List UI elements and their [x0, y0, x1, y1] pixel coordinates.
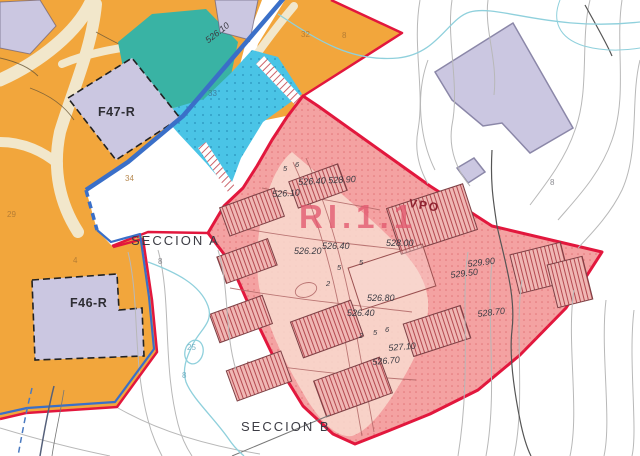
sector-label: RI.1.1: [299, 200, 417, 233]
road-width-label: 5: [373, 329, 377, 337]
elevation-label: 526.40: [322, 242, 350, 251]
parcel-number: 29: [7, 211, 16, 219]
road-width-label: 6: [295, 161, 299, 169]
elevation-label: 526.10: [272, 189, 300, 199]
seccion-a-label: SECCION A: [131, 234, 220, 247]
elevation-label: 526.80: [367, 294, 395, 303]
seccion-b-label: SECCION B: [241, 420, 331, 433]
parcel-label-f47: F47-R: [98, 106, 135, 119]
elevation-label: 526.20: [294, 247, 322, 256]
parcel-number: 8: [550, 179, 554, 187]
elevation-label: 526.40: [347, 309, 375, 318]
road-width-label: 2: [359, 332, 363, 340]
parcel-number: 8: [182, 372, 186, 380]
road-width-label: 6: [385, 326, 389, 334]
elevation-label: 528.00: [386, 239, 414, 248]
parcel-number: 4: [73, 257, 77, 265]
parcel-number: 33: [208, 90, 217, 98]
parcel-number: 25: [187, 344, 196, 352]
parcel-number: 8: [158, 258, 162, 266]
road-width-label: 2: [326, 280, 330, 288]
road-width-label: 5: [359, 259, 363, 267]
parcel-number: 8: [342, 32, 346, 40]
road-width-label: 5: [337, 264, 341, 272]
road-width-label: 5: [283, 165, 287, 173]
zoning-map: F47-R F46-R SECCION A SECCION B VPO RI.1…: [0, 0, 640, 456]
existing-buildings: [435, 23, 573, 183]
parcel-number: 34: [125, 175, 134, 183]
parcel-label-f46: F46-R: [70, 297, 107, 310]
parcel-number: 32: [301, 31, 310, 39]
